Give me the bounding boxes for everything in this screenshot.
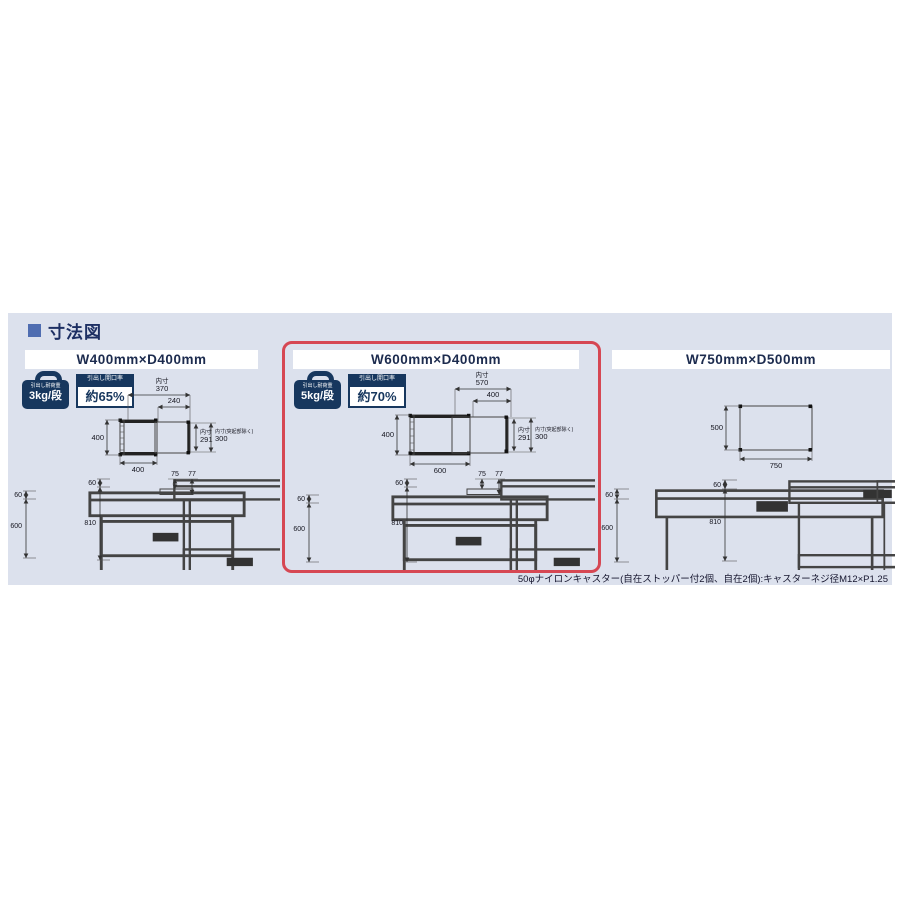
- w600-cart-side-view: 60 600: [293, 495, 547, 570]
- dim-board-a: 75: [478, 471, 486, 478]
- dim-depth: 400: [381, 430, 394, 439]
- catalog-dimension-page: 寸法図 W400mm×D400mm W600mm×D400mm W750mm×D…: [0, 0, 900, 900]
- dim-inner-width: 570: [476, 378, 489, 387]
- dim-full-height: 810: [391, 520, 403, 527]
- dim-board-b: 77: [495, 471, 503, 478]
- dim-opening: 400: [487, 390, 500, 399]
- dim-inner-depth: 291: [518, 433, 531, 442]
- dim-tray-height: 60: [605, 492, 613, 499]
- dim-tray-height: 60: [88, 480, 96, 487]
- panel-title-w600xd400: W600mm×D400mm: [293, 350, 579, 369]
- dim-body-height: 600: [293, 526, 305, 533]
- w750-cart-front-view: 60 810: [709, 480, 895, 570]
- dim-width: 400: [132, 465, 145, 474]
- caster-footnote: 50φナイロンキャスター(自在ストッパー付2個、自在2個):キャスターネジ径M1…: [8, 571, 888, 585]
- dim-full-height: 810: [709, 519, 721, 526]
- panel-title-w750xd500: W750mm×D500mm: [612, 350, 890, 369]
- dim-inner-depth2: 300: [535, 432, 548, 441]
- w750-drawings: 500 750 60 600 60 810: [600, 370, 895, 570]
- dim-tray-height: 60: [297, 496, 305, 503]
- panel-title-w400xd400: W400mm×D400mm: [25, 350, 258, 369]
- dim-inner-width: 370: [156, 384, 169, 393]
- dim-tray-height: 60: [14, 492, 22, 499]
- w750-topview: 500 750: [710, 405, 812, 471]
- w400-drawings: 内寸 370 240 400 400: [10, 370, 280, 570]
- dim-depth: 500: [710, 423, 723, 432]
- dim-body-height: 600: [601, 525, 613, 532]
- dim-opening: 240: [168, 396, 181, 405]
- w400-cart-side-view: 60 600: [10, 491, 244, 570]
- dim-width: 750: [770, 461, 783, 470]
- dim-tray-height: 60: [395, 480, 403, 487]
- dim-tray-height: 60: [713, 482, 721, 489]
- dim-inner-depth2: 300: [215, 434, 228, 443]
- w750-cart-side-view: 60 600: [601, 489, 882, 570]
- dim-depth: 400: [91, 433, 104, 442]
- section-title: 寸法図: [48, 318, 102, 343]
- w600-topview: 内寸 570 400 400 600: [381, 370, 573, 475]
- section-square-icon: [28, 324, 41, 337]
- dim-width: 600: [434, 466, 447, 475]
- dim-full-height: 810: [84, 520, 96, 527]
- w400-topview: 内寸 370 240 400 400: [91, 376, 253, 474]
- dim-board-a: 75: [171, 471, 179, 478]
- section-header: 寸法図: [28, 320, 102, 340]
- dim-body-height: 600: [10, 523, 22, 530]
- w600-drawings: 内寸 570 400 400 600: [285, 370, 595, 570]
- dim-board-b: 77: [188, 471, 196, 478]
